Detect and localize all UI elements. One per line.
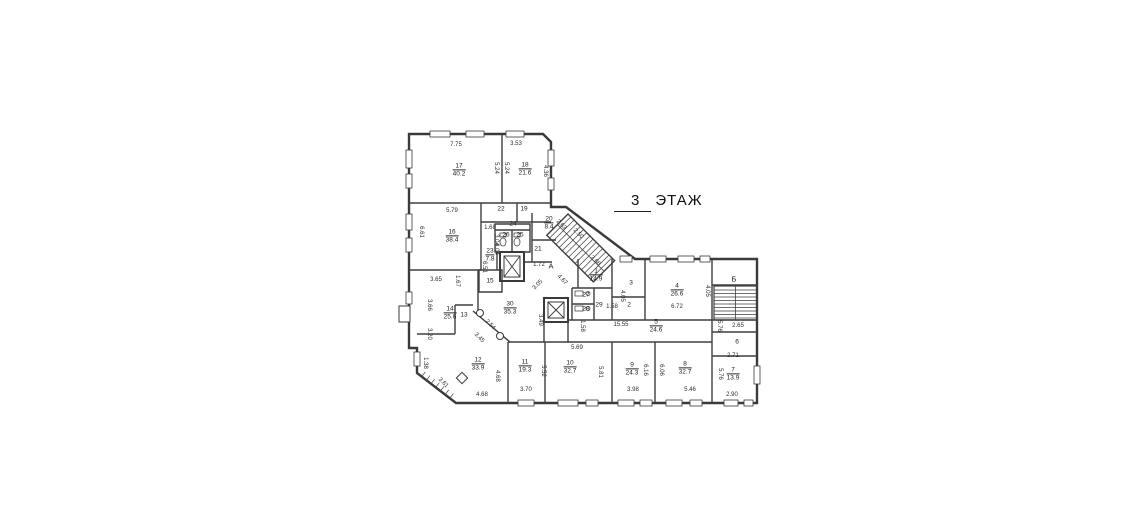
room-label-28: 28 xyxy=(581,305,590,312)
room-label-9: 924.3 xyxy=(626,361,639,376)
room-label-1: 114.9 xyxy=(590,267,603,282)
floor-number: 3 xyxy=(614,192,651,212)
staircase-label-А: А xyxy=(548,262,553,271)
dimension-label: 3.98 xyxy=(627,387,639,393)
room-label-5: 524.6 xyxy=(650,318,663,333)
room-label-29: 29 xyxy=(594,301,603,308)
dimension-label: 3.70 xyxy=(520,387,532,393)
room-label-6: 6 xyxy=(734,338,740,345)
dimension-label: 3.61 xyxy=(437,377,450,390)
room-label-18: 1821.6 xyxy=(519,161,532,176)
dimension-label: 7.75 xyxy=(450,142,462,148)
room-label-24: 24 xyxy=(508,220,517,227)
dimension-label: 4.05 xyxy=(619,290,625,302)
room-label-11: 1119.3 xyxy=(519,358,532,373)
dimension-label: 2.71 xyxy=(727,353,739,359)
dimension-label: 3.45 xyxy=(473,332,486,345)
room-label-3: 3 xyxy=(628,279,634,286)
room-label-14: 1425.6 xyxy=(444,305,457,320)
dimension-label: 2.65 xyxy=(732,323,744,329)
dimension-label: 2.90 xyxy=(726,392,738,398)
dimension-label: 5.69 xyxy=(571,345,583,351)
room-label-30: 3035.3 xyxy=(504,300,517,315)
dimension-label: 3.20 xyxy=(426,328,432,340)
dimension-label: 5.76 xyxy=(716,320,722,332)
dimension-label: 5.52 xyxy=(540,365,546,377)
dimension-label: 1.38 xyxy=(422,357,428,369)
room-label-26: 26 xyxy=(501,231,510,238)
dimension-label: 15.55 xyxy=(613,322,628,328)
dimension-label: 1.67 xyxy=(454,275,460,287)
dimension-label: 3.66 xyxy=(589,255,602,268)
room-label-8: 832.7 xyxy=(679,360,692,375)
dimension-label: 4.36 xyxy=(542,165,548,177)
dimension-label: 5.81 xyxy=(597,366,603,378)
room-label-21: 21 xyxy=(533,245,542,252)
dimension-label: 3.66 xyxy=(426,299,432,311)
room-label-22: 22 xyxy=(496,205,505,212)
room-label-10: 1032.7 xyxy=(564,359,577,374)
labels-layer: 1740.21821.61638.42219242625208.421237.8… xyxy=(0,0,1134,530)
room-label-16: 1638.4 xyxy=(446,228,459,243)
dimension-label: 3.49 xyxy=(537,314,543,326)
dimension-label: 4.04 xyxy=(493,243,499,255)
floor-plan-page: 1740.21821.61638.42219242625208.421237.8… xyxy=(0,0,1134,530)
dimension-label: 5.46 xyxy=(684,387,696,393)
dimension-label: 2.54 xyxy=(484,319,497,332)
dimension-label: 5.76 xyxy=(717,368,723,380)
dimension-label: 2.63 xyxy=(555,219,568,232)
dimension-label: 6.61 xyxy=(418,226,424,238)
room-label-2: 2 xyxy=(626,301,632,308)
room-label-19: 19 xyxy=(519,205,528,212)
dimension-label: 2.50 xyxy=(572,228,585,241)
room-label-20: 208.4 xyxy=(544,215,553,230)
dimension-label: 1.72 xyxy=(533,262,545,268)
dimension-label: 5.24 xyxy=(493,162,499,174)
dimension-label: 4.05 xyxy=(704,285,710,297)
dimension-label: 6.51 xyxy=(481,261,487,273)
staircase-label-Б: Б xyxy=(732,275,737,284)
dimension-label: 4.68 xyxy=(476,392,488,398)
dimension-label: 3.65 xyxy=(430,277,442,283)
dimension-label: 3.05 xyxy=(532,279,545,292)
dimension-label: 6.06 xyxy=(658,364,664,376)
room-label-27: 27 xyxy=(581,291,590,298)
room-label-4: 426.6 xyxy=(671,282,684,297)
room-label-7: 713.9 xyxy=(727,366,740,381)
dimension-label: 4.67 xyxy=(556,274,569,287)
room-label-12: 1233.9 xyxy=(472,356,485,371)
dimension-label: 5.24 xyxy=(503,162,509,174)
room-label-25: 25 xyxy=(515,231,524,238)
floor-word: ЭТАЖ xyxy=(655,192,702,209)
floor-title: 3ЭТАЖ xyxy=(614,192,703,212)
dimension-label: 4.68 xyxy=(494,370,500,382)
dimension-label: 5.79 xyxy=(446,208,458,214)
dimension-label: 6.72 xyxy=(671,304,683,310)
room-label-13: 13 xyxy=(459,311,468,318)
dimension-label: 1.58 xyxy=(579,320,585,332)
room-label-15: 15 xyxy=(485,277,494,284)
dimension-label: 6.16 xyxy=(642,364,648,376)
dimension-label: 1.68 xyxy=(484,225,496,231)
dimension-label: 1.58 xyxy=(606,304,618,310)
room-label-17: 1740.2 xyxy=(453,162,466,177)
dimension-label: 3.53 xyxy=(510,141,522,147)
